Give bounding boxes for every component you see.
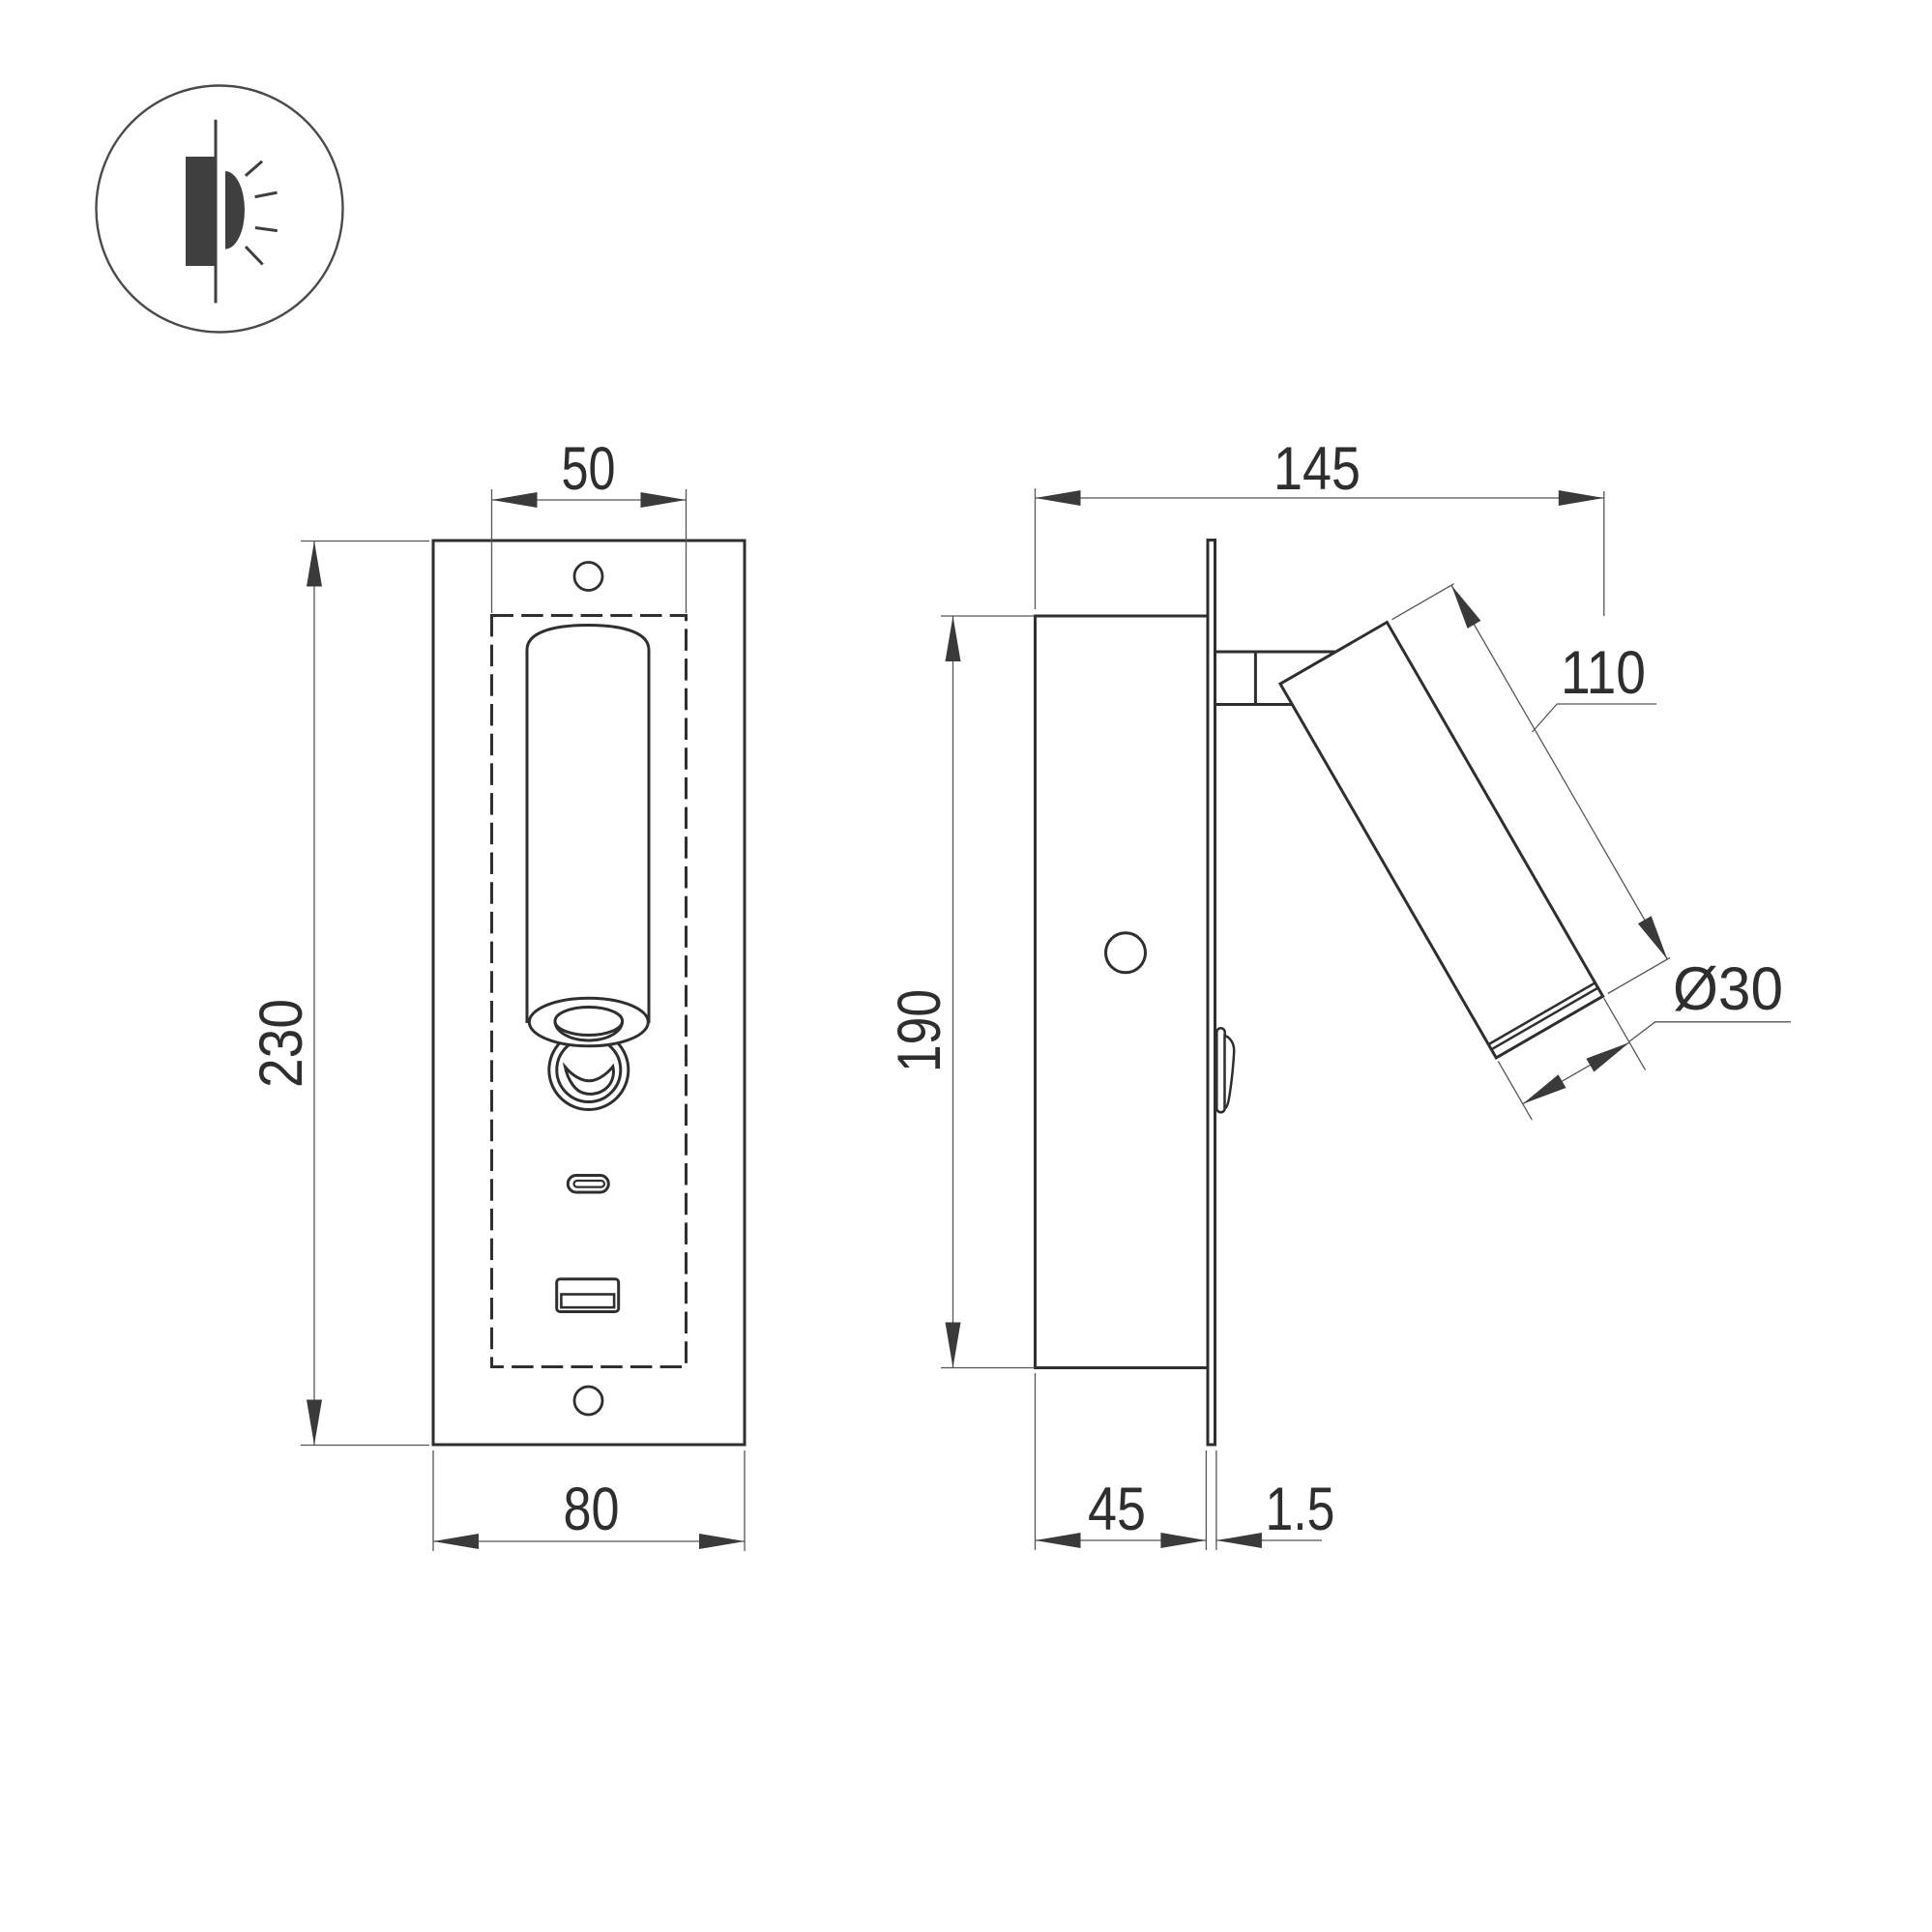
- svg-text:80: 80: [564, 1476, 620, 1543]
- svg-text:230: 230: [248, 999, 315, 1088]
- svg-text:Ø30: Ø30: [1673, 955, 1783, 1023]
- svg-text:145: 145: [1273, 435, 1361, 503]
- svg-text:1.5: 1.5: [1266, 1476, 1335, 1543]
- svg-text:110: 110: [1561, 639, 1646, 707]
- svg-text:50: 50: [562, 435, 616, 503]
- svg-text:45: 45: [1088, 1476, 1146, 1543]
- svg-text:190: 190: [886, 989, 953, 1072]
